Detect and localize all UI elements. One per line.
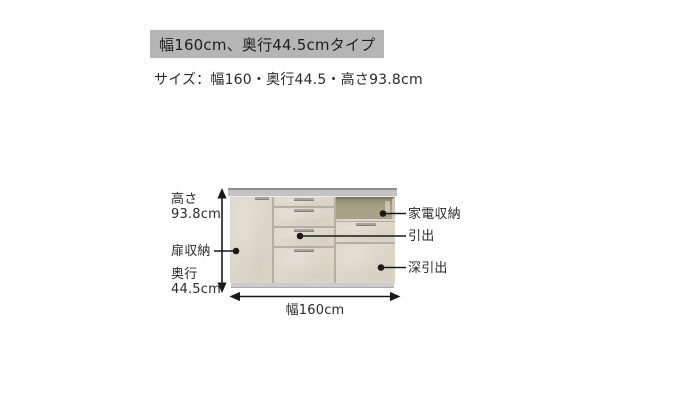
right-column [336, 197, 395, 283]
outlet-detail [385, 201, 390, 214]
height-dimension-label: 高さ 93.8cm [171, 192, 221, 222]
drawer-1 [274, 197, 334, 206]
width-arrow-right-icon [390, 292, 401, 301]
appliance-compartment [336, 197, 395, 219]
drawer-3 [274, 228, 334, 246]
door-storage-label: 扉収納 [171, 244, 211, 259]
door-handle [255, 197, 269, 200]
width-arrow-left-icon [230, 292, 241, 301]
size-subtitle: サイズ：幅160・奥行44.5・高さ93.8cm [154, 69, 423, 89]
drawer-label: 引出 [408, 229, 434, 244]
type-title-text: 幅160cm、奥行44.5cmタイプ [159, 34, 375, 55]
drawer-4 [274, 248, 334, 283]
right-drawer [336, 222, 395, 242]
width-dimension-label: 幅160cm [230, 303, 400, 318]
height-label-word: 高さ [171, 192, 221, 207]
base-kickboard [231, 283, 394, 288]
right-drawer-handle [356, 223, 376, 226]
drawer-2 [274, 208, 334, 226]
depth-label-value: 44.5cm [171, 282, 221, 297]
drawer-1-handle [294, 198, 314, 201]
depth-dimension-label: 奥行 44.5cm [171, 267, 221, 297]
left-door-panel [230, 197, 272, 283]
appliance-storage-label: 家電収納 [408, 207, 461, 222]
type-title-bar: 幅160cm、奥行44.5cmタイプ [150, 30, 384, 58]
height-label-value: 93.8cm [171, 207, 221, 222]
cabinet-body [230, 197, 395, 283]
countertop [228, 188, 397, 197]
drawer-2-handle [294, 209, 314, 212]
drawer-4-handle [294, 249, 314, 252]
drawer-column [274, 197, 334, 283]
deep-drawer-label: 深引出 [408, 261, 448, 276]
drawer-3-handle [294, 229, 314, 232]
deep-drawer [336, 244, 395, 283]
depth-label-word: 奥行 [171, 267, 221, 282]
